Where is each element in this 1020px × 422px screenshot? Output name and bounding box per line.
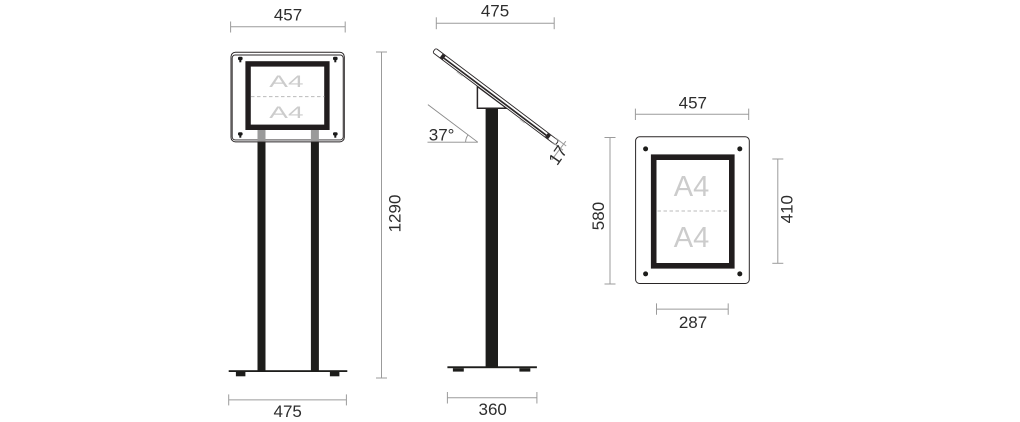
svg-text:475: 475 [274,402,302,421]
svg-text:287: 287 [679,313,707,332]
svg-text:A4: A4 [674,171,709,203]
svg-text:457: 457 [679,93,707,112]
svg-text:360: 360 [479,400,507,419]
svg-text:1290: 1290 [385,195,404,233]
svg-text:17: 17 [545,142,571,168]
svg-text:410: 410 [778,195,797,223]
svg-text:475: 475 [481,1,509,20]
svg-text:A4: A4 [674,222,709,254]
svg-text:580: 580 [589,202,608,230]
svg-text:37°: 37° [429,125,455,144]
svg-text:A4: A4 [269,72,303,91]
svg-text:A4: A4 [269,103,303,122]
svg-text:457: 457 [274,6,302,25]
